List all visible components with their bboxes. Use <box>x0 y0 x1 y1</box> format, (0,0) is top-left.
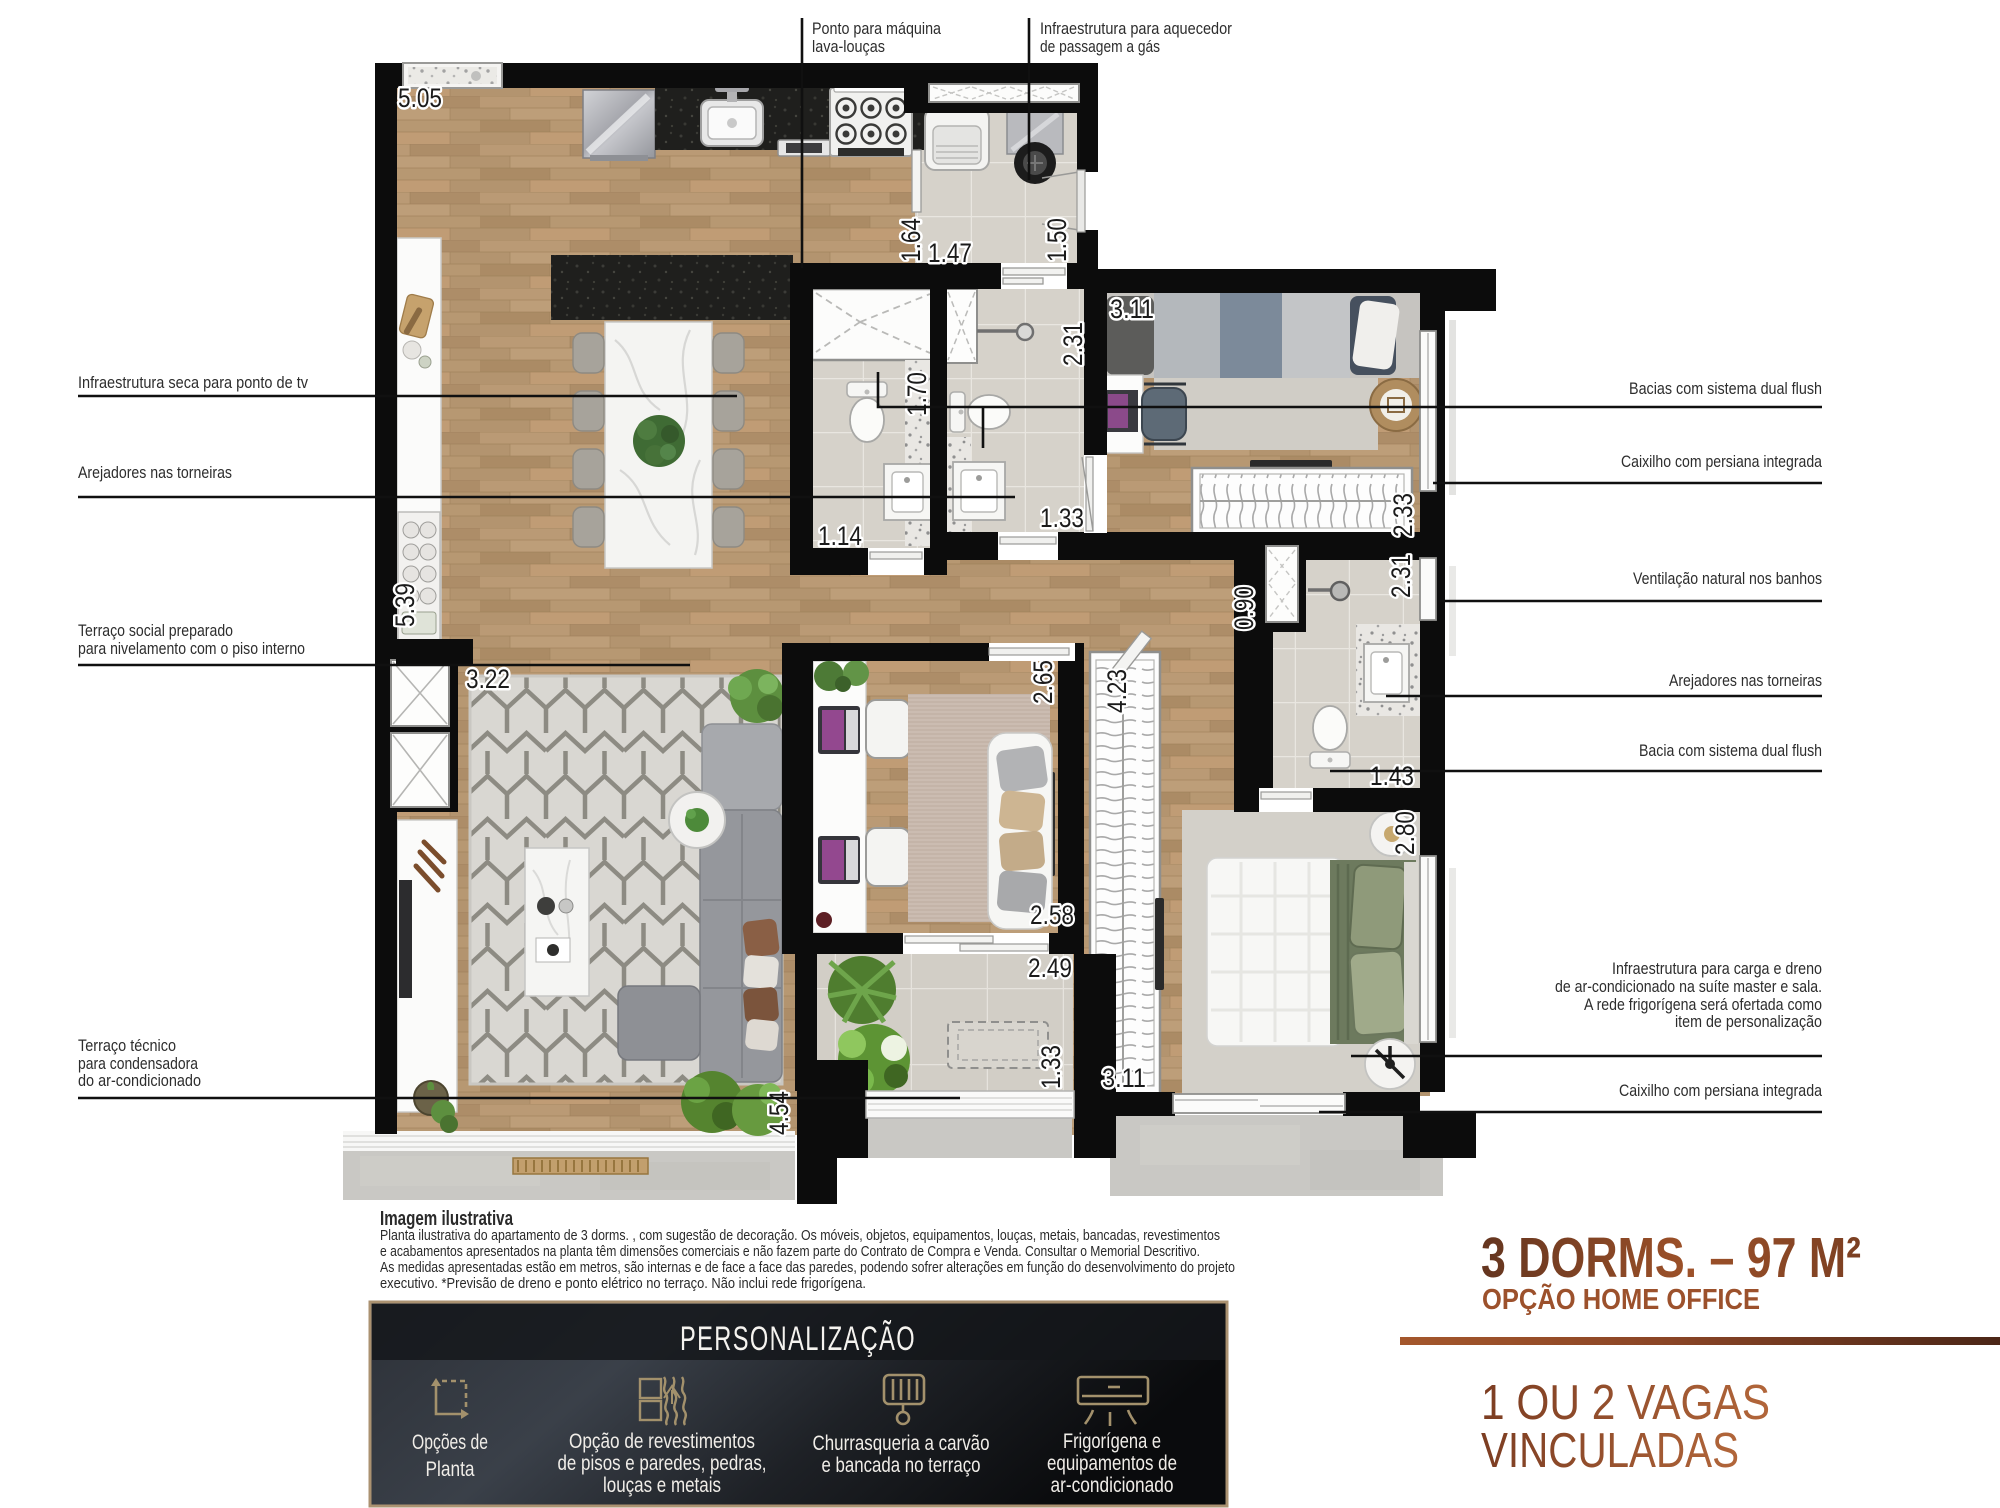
svg-text:3.11: 3.11 <box>1110 294 1154 324</box>
svg-text:lava-louças: lava-louças <box>812 38 885 56</box>
svg-text:para condensadora: para condensadora <box>78 1055 199 1073</box>
svg-text:Infraestrutura seca para ponto: Infraestrutura seca para ponto de tv <box>78 374 309 392</box>
svg-text:1.70: 1.70 <box>902 372 932 416</box>
svg-text:Planta ilustrativa do apartame: Planta ilustrativa do apartamento de 3 d… <box>380 1228 1220 1244</box>
svg-text:As medidas apresentadas estão: As medidas apresentadas estão em metros,… <box>380 1260 1235 1276</box>
svg-text:executivo. *Previsão de dreno: executivo. *Previsão de dreno e ponto el… <box>380 1276 866 1292</box>
svg-text:3 DORMS. – 97 M²: 3 DORMS. – 97 M² <box>1481 1226 1861 1290</box>
svg-text:3.11: 3.11 <box>1102 1063 1146 1093</box>
svg-text:Opções de: Opções de <box>412 1430 488 1454</box>
svg-text:Frigorígena e: Frigorígena e <box>1063 1429 1161 1453</box>
svg-text:2.49: 2.49 <box>1028 953 1072 983</box>
svg-text:louças e metais: louças e metais <box>603 1473 721 1497</box>
svg-text:para nivelamento com o piso in: para nivelamento com o piso interno <box>78 640 305 658</box>
svg-text:Bacias com sistema dual flush: Bacias com sistema dual flush <box>1629 380 1822 398</box>
svg-text:Imagem ilustrativa: Imagem ilustrativa <box>380 1208 514 1230</box>
svg-text:A rede frigorígena será oferta: A rede frigorígena será ofertada como <box>1584 996 1822 1014</box>
svg-text:Bacia com sistema dual flush: Bacia com sistema dual flush <box>1639 742 1822 760</box>
svg-text:5.39: 5.39 <box>390 583 420 627</box>
svg-text:1.50: 1.50 <box>1042 218 1072 262</box>
svg-text:1.14: 1.14 <box>818 521 862 551</box>
svg-text:1.64: 1.64 <box>896 218 926 262</box>
svg-text:Arejadores nas torneiras: Arejadores nas torneiras <box>1669 672 1822 690</box>
svg-text:5.05: 5.05 <box>398 83 442 113</box>
svg-text:2.80: 2.80 <box>1390 811 1420 855</box>
svg-text:1.47: 1.47 <box>928 238 972 268</box>
svg-text:Terraço social preparado: Terraço social preparado <box>78 622 233 640</box>
svg-text:4.23: 4.23 <box>1102 669 1132 713</box>
svg-text:Planta: Planta <box>426 1457 475 1481</box>
svg-text:do ar-condicionado: do ar-condicionado <box>78 1072 201 1090</box>
svg-text:2.58: 2.58 <box>1030 900 1074 930</box>
svg-text:Ponto para máquina: Ponto para máquina <box>812 20 942 38</box>
svg-text:PERSONALIZAÇÃO: PERSONALIZAÇÃO <box>680 1320 916 1358</box>
svg-text:1.33: 1.33 <box>1036 1045 1066 1089</box>
svg-text:2.33: 2.33 <box>1388 493 1418 537</box>
svg-text:VINCULADAS: VINCULADAS <box>1481 1424 1739 1478</box>
svg-text:Opção de revestimentos: Opção de revestimentos <box>569 1429 755 1453</box>
svg-text:2.65: 2.65 <box>1028 660 1058 704</box>
svg-text:OPÇÃO HOME OFFICE: OPÇÃO HOME OFFICE <box>1482 1282 1760 1316</box>
svg-text:Infraestrutura para carga e dr: Infraestrutura para carga e dreno <box>1612 960 1822 978</box>
svg-text:Infraestrutura para aquecedor: Infraestrutura para aquecedor <box>1040 20 1232 38</box>
svg-text:0.90: 0.90 <box>1229 586 1259 630</box>
svg-text:1 OU 2 VAGAS: 1 OU 2 VAGAS <box>1481 1376 1770 1430</box>
svg-text:Caixilho com persiana integrad: Caixilho com persiana integrada <box>1619 1082 1823 1100</box>
svg-text:de ar-condicionado na suíte ma: de ar-condicionado na suíte master e sal… <box>1555 978 1822 996</box>
svg-text:2.31: 2.31 <box>1058 322 1088 366</box>
svg-text:1.33: 1.33 <box>1040 503 1084 533</box>
svg-text:de passagem a gás: de passagem a gás <box>1040 38 1160 56</box>
svg-text:Caixilho com persiana integrad: Caixilho com persiana integrada <box>1621 453 1823 471</box>
svg-text:de pisos e paredes, pedras,: de pisos e paredes, pedras, <box>558 1451 767 1475</box>
svg-text:2.31: 2.31 <box>1386 554 1416 598</box>
svg-text:equipamentos de: equipamentos de <box>1047 1451 1177 1475</box>
svg-text:3.22: 3.22 <box>466 664 510 694</box>
svg-text:Churrasqueria a carvão: Churrasqueria a carvão <box>813 1431 990 1455</box>
svg-text:1.43: 1.43 <box>1370 761 1414 791</box>
svg-text:Arejadores nas torneiras: Arejadores nas torneiras <box>78 464 232 482</box>
svg-text:item de personalização: item de personalização <box>1675 1013 1822 1031</box>
svg-text:ar-condicionado: ar-condicionado <box>1051 1473 1174 1497</box>
svg-text:e bancada no terraço: e bancada no terraço <box>822 1453 981 1477</box>
svg-text:Ventilação natural nos banhos: Ventilação natural nos banhos <box>1633 570 1822 588</box>
svg-text:e acabamentos apresentados na: e acabamentos apresentados na planta têm… <box>380 1244 1200 1260</box>
svg-text:Terraço técnico: Terraço técnico <box>78 1037 176 1055</box>
